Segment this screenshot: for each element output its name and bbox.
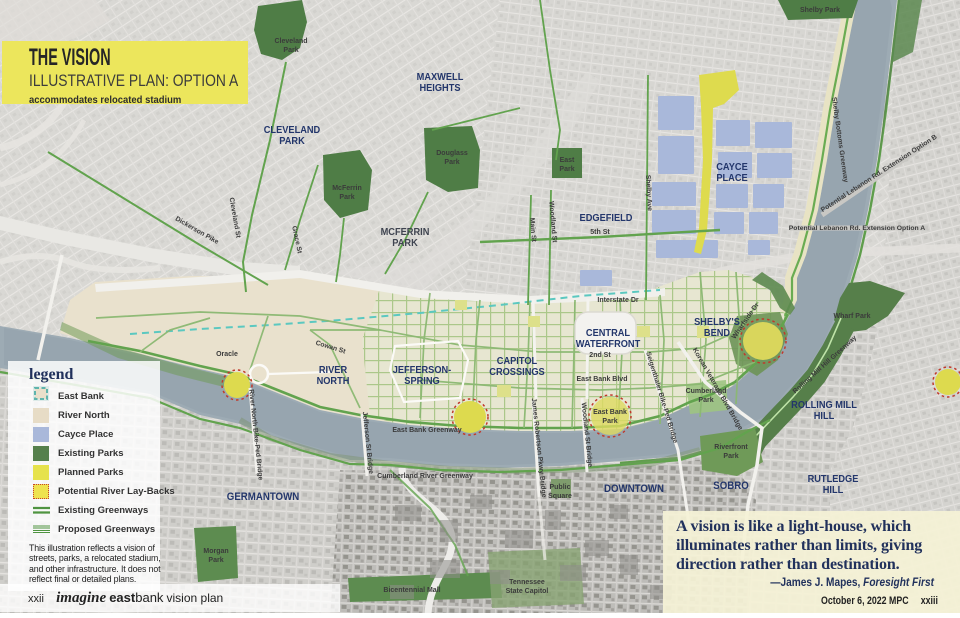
- svg-text:Potential Lebanon Rd. Extensio: Potential Lebanon Rd. Extension Option A: [789, 225, 926, 232]
- svg-text:Park: Park: [444, 159, 459, 166]
- svg-text:Oracle: Oracle: [216, 351, 238, 358]
- svg-text:Shelby Park: Shelby Park: [800, 7, 840, 14]
- svg-text:East Bank Greenway: East Bank Greenway: [392, 427, 461, 434]
- svg-text:State Capitol: State Capitol: [506, 588, 549, 595]
- svg-text:Morgan: Morgan: [203, 548, 228, 555]
- svg-text:2nd St: 2nd St: [589, 352, 611, 359]
- svg-text:Park: Park: [723, 453, 738, 460]
- svg-text:East: East: [560, 157, 575, 164]
- svg-text:Park: Park: [208, 557, 223, 564]
- svg-text:East Bank Blvd: East Bank Blvd: [577, 376, 628, 383]
- svg-text:Riverfront: Riverfront: [714, 444, 748, 451]
- svg-text:Park: Park: [602, 418, 617, 425]
- svg-text:Square: Square: [548, 493, 572, 500]
- svg-text:Park: Park: [559, 166, 574, 173]
- svg-text:Tennessee: Tennessee: [509, 579, 545, 586]
- svg-text:Bicentennial Mall: Bicentennial Mall: [383, 587, 440, 594]
- svg-text:Park: Park: [698, 397, 713, 404]
- svg-text:Public: Public: [549, 484, 570, 491]
- svg-text:Douglass: Douglass: [436, 150, 468, 157]
- svg-text:Cumberland River Greenway: Cumberland River Greenway: [377, 473, 473, 480]
- svg-text:Wharf Park: Wharf Park: [834, 313, 871, 320]
- svg-text:5th St: 5th St: [590, 229, 610, 236]
- svg-text:Park: Park: [283, 47, 298, 54]
- svg-text:Park: Park: [339, 194, 354, 201]
- svg-text:East Bank: East Bank: [593, 409, 627, 416]
- svg-text:Interstate Dr: Interstate Dr: [597, 297, 639, 304]
- svg-text:Cleveland: Cleveland: [274, 38, 307, 45]
- svg-text:McFerrin: McFerrin: [332, 185, 362, 192]
